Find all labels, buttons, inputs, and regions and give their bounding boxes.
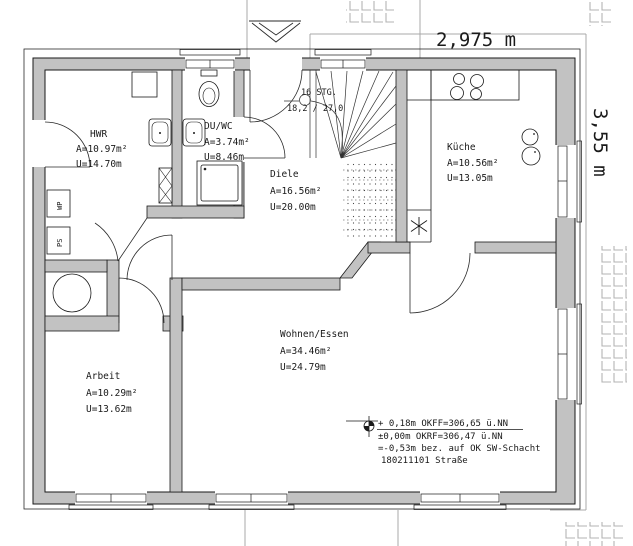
room-name: Arbeit xyxy=(86,371,120,382)
entrance-arrow-icon xyxy=(249,21,301,42)
boiler-tank xyxy=(53,274,91,312)
corridor-door xyxy=(127,235,172,280)
room-perimeter: U=13.05m xyxy=(447,173,493,184)
room-area: A=10.29m² xyxy=(86,388,137,399)
room-perimeter: U=20.00m xyxy=(270,202,316,213)
level-annotation: + 0,18m OKFF=306,65 ü.NN ±0,00m OKRF=306… xyxy=(378,419,541,466)
duct-shaft xyxy=(159,168,172,203)
room-perimeter: U=13.62m xyxy=(86,404,132,415)
stair-count: 16 STG. xyxy=(301,88,337,98)
room-area: A=10.56m² xyxy=(447,158,498,169)
wp-label: WP xyxy=(56,202,64,210)
room-perimeter: U=14.70m xyxy=(76,159,122,170)
level-line-1: + 0,18m OKFF=306,65 ü.NN xyxy=(378,419,508,429)
room-hwr: HWR A=10.97m² U=14.70m xyxy=(76,129,127,170)
duwc-door xyxy=(244,117,285,158)
room-perimeter: U=8.46m xyxy=(204,152,244,163)
room-perimeter: U=24.79m xyxy=(280,362,326,373)
room-area: A=3.74m² xyxy=(204,137,250,148)
level-line-3: =-0,53m bez. auf OK SW-Schacht xyxy=(378,444,541,454)
room-name: HWR xyxy=(90,129,107,140)
kitchen-counter xyxy=(407,70,540,242)
room-name: DU/WC xyxy=(204,121,233,132)
wohnen-door xyxy=(410,253,470,313)
room-area: A=10.97m² xyxy=(76,144,127,155)
room-kueche: Küche A=10.56m² U=13.05m xyxy=(447,142,498,184)
ps-label: PS xyxy=(56,239,64,247)
toilet xyxy=(199,70,219,107)
dimension-top: 2,975 m xyxy=(436,29,516,51)
stair-ratio: 18,2 / 27,0 xyxy=(287,104,343,114)
asterisk-icon xyxy=(411,217,427,235)
room-name: Diele xyxy=(270,169,299,180)
room-diele: Diele A=16.56m² U=20.00m xyxy=(270,169,321,213)
shower xyxy=(197,161,242,205)
hwr-shaft xyxy=(132,72,157,97)
kitchen-sink-basin xyxy=(522,129,538,145)
room-area: A=16.56m² xyxy=(270,186,321,197)
level-line-4: 180211101 Straße xyxy=(381,456,468,466)
hwr-door xyxy=(95,218,147,261)
entrance-door xyxy=(250,70,302,122)
kitchen-sink-basin xyxy=(522,147,540,165)
room-name: Küche xyxy=(447,142,476,153)
floorplan-svg: HWR A=10.97m² U=14.70m DU/WC A=3.74m² U=… xyxy=(0,0,633,546)
room-area: A=34.46m² xyxy=(280,346,331,357)
level-line-2: ±0,00m OKRF=306,47 ü.NN xyxy=(378,432,503,442)
room-arbeit: Arbeit A=10.29m² U=13.62m xyxy=(86,371,137,415)
room-name: Wohnen/Essen xyxy=(280,329,349,340)
arbeit-door xyxy=(119,278,164,323)
floorplan-page: HWR A=10.97m² U=14.70m DU/WC A=3.74m² U=… xyxy=(0,0,633,546)
dimension-right: 3,55 m xyxy=(589,108,611,177)
room-wohnen: Wohnen/Essen A=34.46m² U=24.79m xyxy=(280,329,349,373)
